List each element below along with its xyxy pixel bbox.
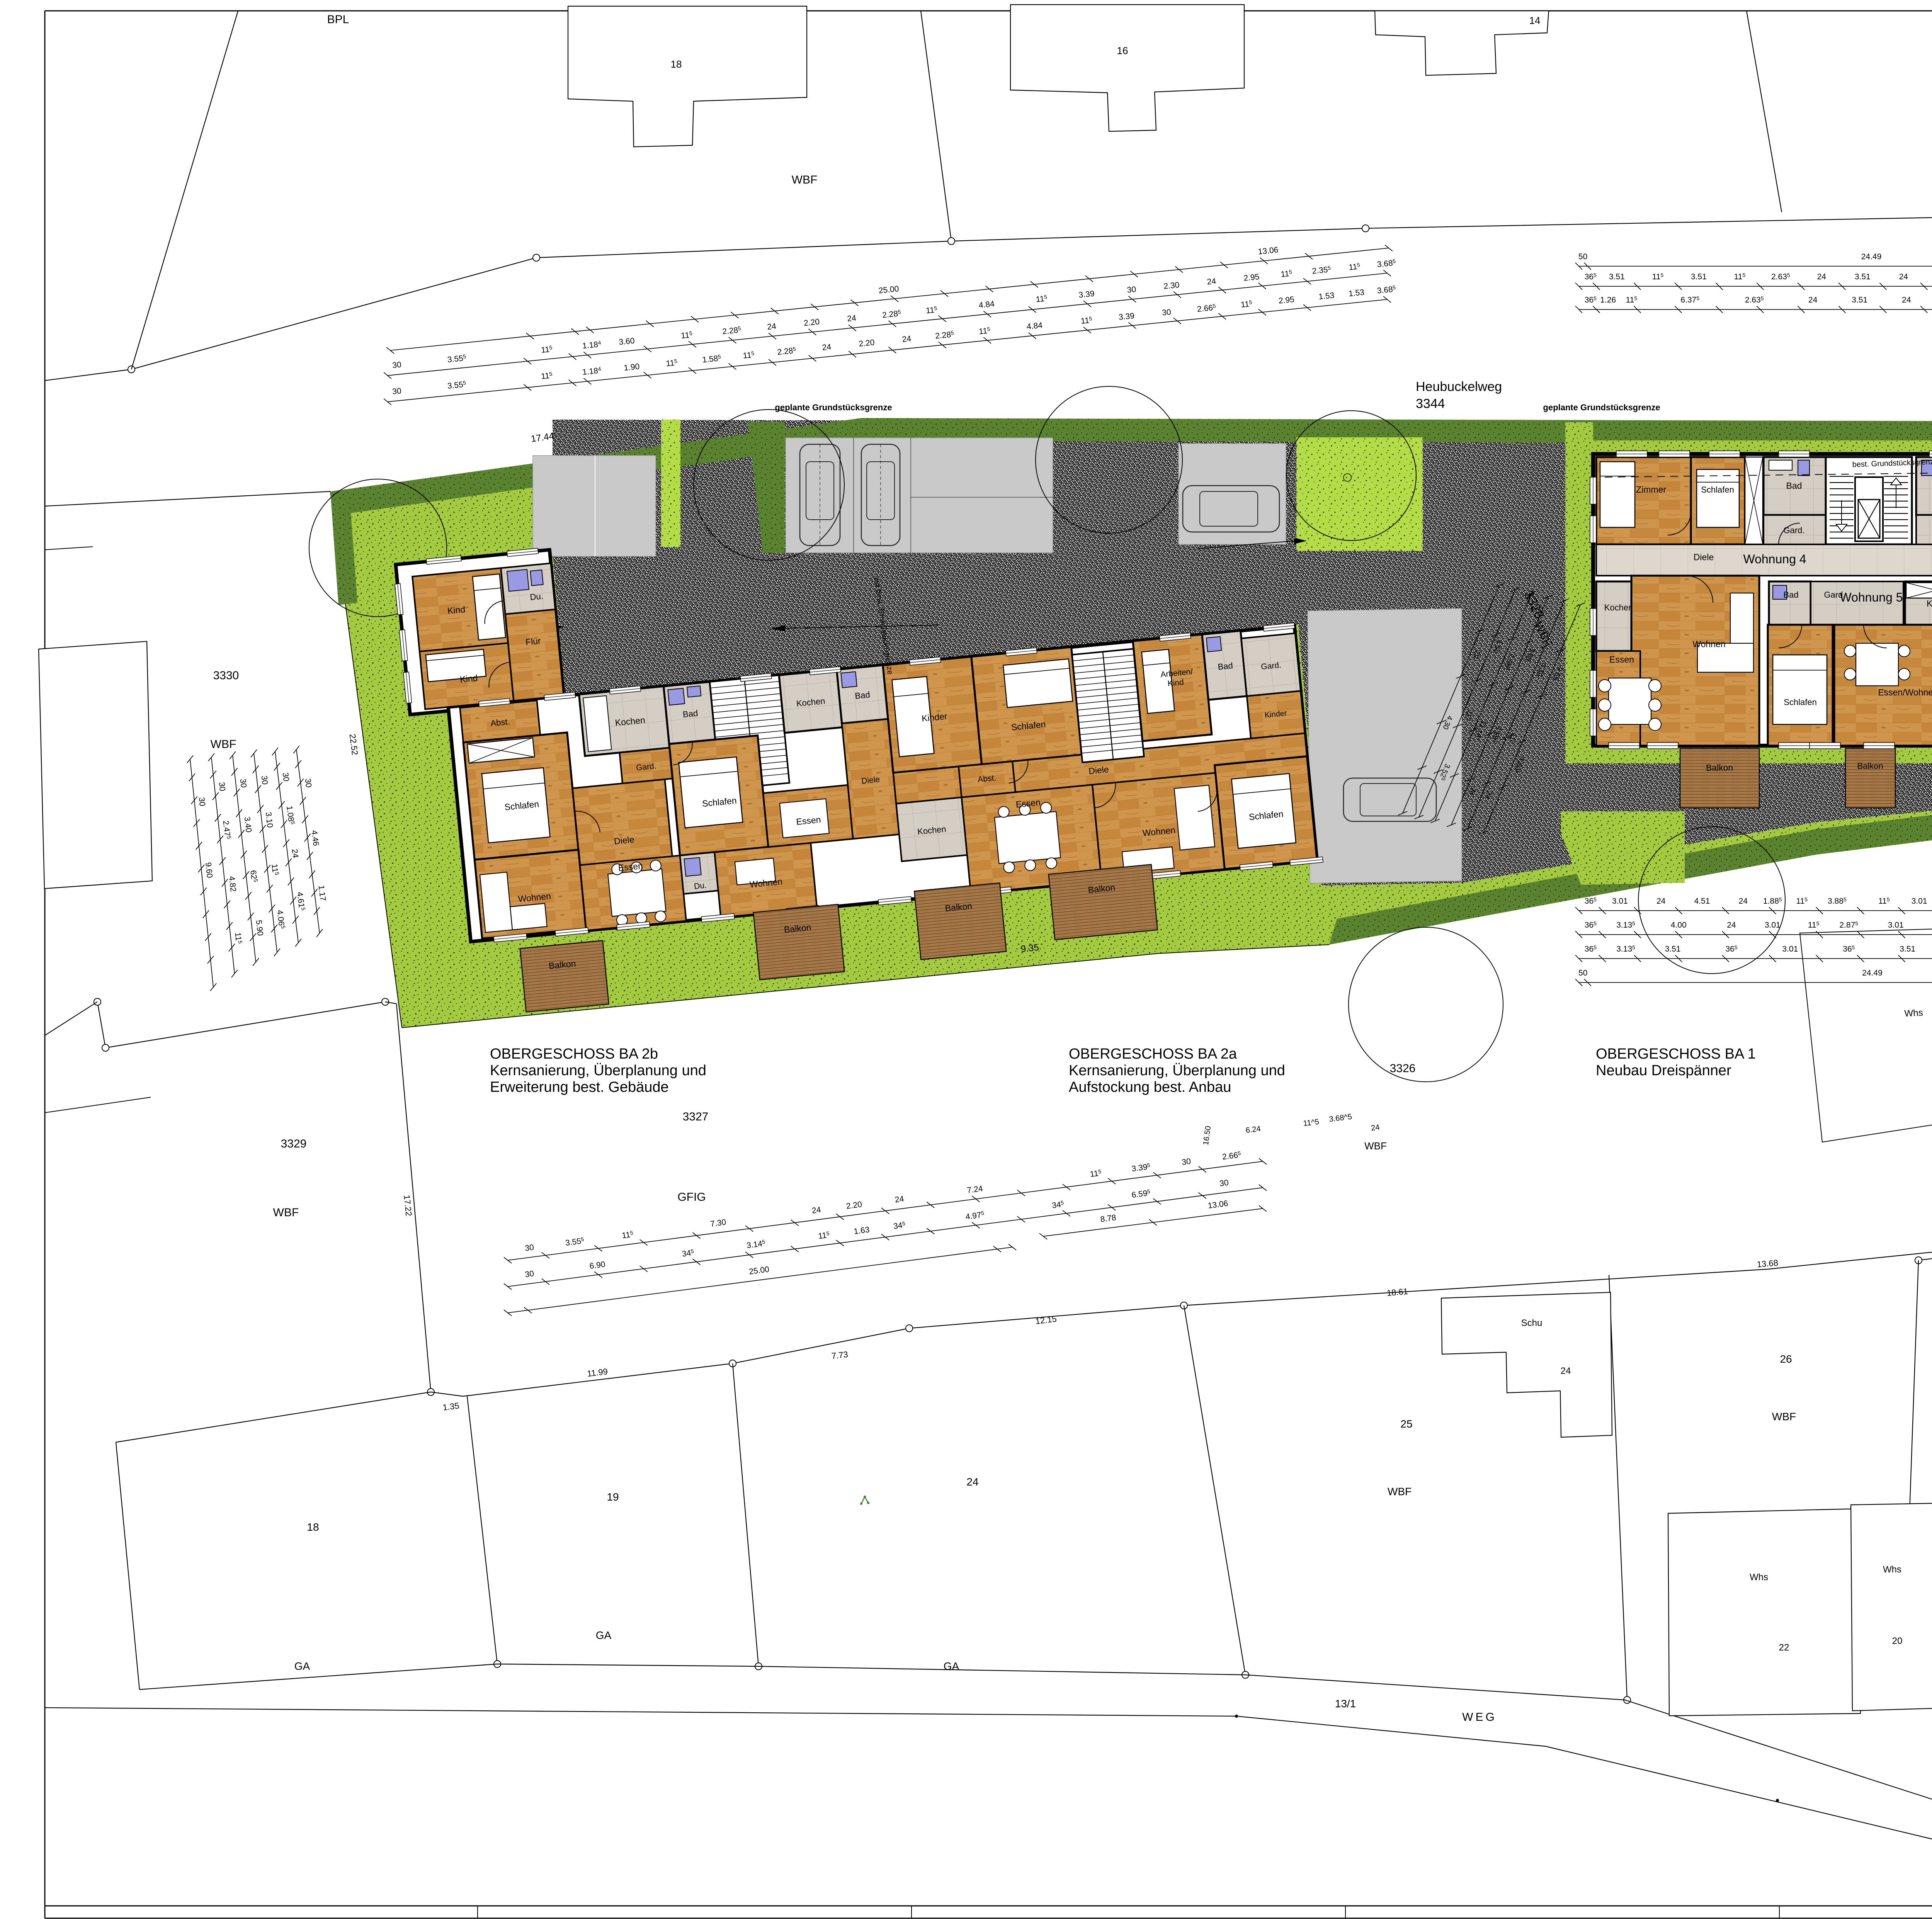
svg-text:24: 24 xyxy=(1656,897,1666,906)
svg-text:24: 24 xyxy=(1207,277,1217,286)
svg-text:4.51: 4.51 xyxy=(1694,897,1710,906)
svg-text:geplante Grundstücksgrenze: geplante Grundstücksgrenze xyxy=(775,403,892,412)
svg-text:25: 25 xyxy=(1400,1418,1412,1430)
svg-text:Wohnung 4: Wohnung 4 xyxy=(1743,552,1806,566)
svg-text:24: 24 xyxy=(1902,296,1911,304)
svg-text:Bad: Bad xyxy=(1786,481,1802,491)
svg-text:18: 18 xyxy=(307,1521,319,1533)
svg-text:24: 24 xyxy=(1561,1366,1571,1376)
svg-text:Wohnen: Wohnen xyxy=(1692,639,1725,649)
svg-text:OBERGESCHOSS BA 2b: OBERGESCHOSS BA 2b xyxy=(490,1046,658,1062)
svg-text:18: 18 xyxy=(671,58,682,70)
svg-text:3326: 3326 xyxy=(1390,1062,1416,1075)
svg-text:24: 24 xyxy=(822,342,832,352)
svg-text:Bad: Bad xyxy=(1217,661,1233,672)
svg-text:Diele: Diele xyxy=(861,775,880,785)
svg-text:3327: 3327 xyxy=(683,1110,709,1123)
svg-text:Du.: Du. xyxy=(694,881,707,891)
svg-text:13.68: 13.68 xyxy=(1757,1258,1779,1270)
svg-text:16: 16 xyxy=(1117,45,1128,56)
svg-text:1.35: 1.35 xyxy=(442,1401,460,1412)
svg-text:3.01: 3.01 xyxy=(1782,945,1798,954)
svg-text:2.30: 2.30 xyxy=(1163,280,1180,291)
svg-text:2.95: 2.95 xyxy=(1278,295,1295,306)
svg-text:Abst.: Abst. xyxy=(977,773,997,784)
svg-text:24.49: 24.49 xyxy=(1862,969,1883,977)
svg-text:3.01: 3.01 xyxy=(1888,921,1904,930)
svg-text:3329: 3329 xyxy=(281,1137,307,1150)
svg-text:1.26: 1.26 xyxy=(1600,296,1616,304)
svg-text:Kochen: Kochen xyxy=(1604,603,1633,612)
svg-text:Essen/Wohnen: Essen/Wohnen xyxy=(1878,687,1932,697)
svg-text:30: 30 xyxy=(197,797,207,807)
svg-text:24.49: 24.49 xyxy=(1861,252,1882,261)
svg-text:22: 22 xyxy=(1779,1642,1789,1653)
svg-text:30: 30 xyxy=(392,386,402,396)
svg-text:30: 30 xyxy=(281,772,291,782)
svg-text:Schlafen: Schlafen xyxy=(1701,485,1734,495)
svg-text:WBF: WBF xyxy=(1772,1411,1796,1423)
svg-text:1.53: 1.53 xyxy=(1348,288,1365,298)
svg-text:Kochen: Kochen xyxy=(1927,598,1932,609)
svg-text:9.35: 9.35 xyxy=(1020,942,1039,955)
svg-text:GFIG: GFIG xyxy=(677,1191,706,1203)
svg-text:Schlafen: Schlafen xyxy=(1784,697,1817,707)
svg-text:GA: GA xyxy=(596,1629,612,1641)
svg-text:Neubau Dreispänner: Neubau Dreispänner xyxy=(1596,1062,1731,1079)
svg-text:Flur: Flur xyxy=(525,636,541,647)
svg-text:3.51: 3.51 xyxy=(1855,272,1871,281)
svg-text:Diele: Diele xyxy=(1088,764,1109,776)
svg-text:30: 30 xyxy=(217,782,227,792)
svg-text:2.95: 2.95 xyxy=(1243,272,1260,283)
svg-text:Essen: Essen xyxy=(1609,654,1634,665)
svg-text:1.53: 1.53 xyxy=(1318,291,1335,301)
svg-text:WBF: WBF xyxy=(211,738,236,751)
svg-text:Heubuckelweg: Heubuckelweg xyxy=(1416,379,1502,394)
svg-text:3344: 3344 xyxy=(1416,396,1445,411)
svg-text:WBF: WBF xyxy=(1364,1140,1387,1152)
svg-text:50: 50 xyxy=(1578,252,1587,261)
svg-text:24: 24 xyxy=(902,334,912,344)
svg-text:30: 30 xyxy=(1219,1178,1229,1188)
svg-text:30: 30 xyxy=(260,775,270,785)
svg-text:2.20: 2.20 xyxy=(803,317,820,328)
svg-text:30: 30 xyxy=(1162,308,1172,317)
svg-text:geplante Grundstücksgrenze: geplante Grundstücksgrenze xyxy=(1543,403,1660,412)
svg-text:OBERGESCHOSS BA 1: OBERGESCHOSS BA 1 xyxy=(1596,1046,1756,1062)
svg-text:6.24: 6.24 xyxy=(1245,1125,1261,1135)
svg-text:24: 24 xyxy=(1817,272,1827,281)
svg-text:WEG: WEG xyxy=(1462,1711,1497,1724)
svg-text:1.90: 1.90 xyxy=(623,362,640,372)
svg-text:26: 26 xyxy=(1780,1353,1792,1365)
svg-text:WBF: WBF xyxy=(273,1206,299,1219)
svg-text:3.51: 3.51 xyxy=(1665,945,1681,954)
svg-text:3.40: 3.40 xyxy=(243,816,253,833)
svg-text:3.01: 3.01 xyxy=(1912,897,1927,906)
svg-text:2.20: 2.20 xyxy=(858,338,875,348)
svg-text:30: 30 xyxy=(303,778,313,788)
svg-text:Bad: Bad xyxy=(854,690,870,701)
svg-text:3.51: 3.51 xyxy=(1609,272,1625,281)
svg-text:Diele: Diele xyxy=(1694,552,1714,562)
svg-text:3.01: 3.01 xyxy=(1612,897,1628,906)
svg-text:Zimmer: Zimmer xyxy=(1636,484,1666,495)
svg-text:24: 24 xyxy=(895,1195,905,1205)
svg-text:Whs: Whs xyxy=(1883,1564,1901,1575)
svg-text:OBERGESCHOSS BA 2a: OBERGESCHOSS BA 2a xyxy=(1069,1046,1237,1062)
svg-text:Kind: Kind xyxy=(1167,678,1184,688)
svg-text:30: 30 xyxy=(392,360,402,370)
svg-text:14: 14 xyxy=(1529,15,1541,26)
svg-text:24: 24 xyxy=(1899,272,1908,281)
svg-text:3.51: 3.51 xyxy=(1691,272,1707,281)
svg-text:4.84: 4.84 xyxy=(1026,321,1043,331)
svg-text:19: 19 xyxy=(607,1491,619,1503)
svg-text:7.73: 7.73 xyxy=(831,1350,849,1361)
svg-text:30: 30 xyxy=(1181,1157,1191,1167)
svg-text:Whs: Whs xyxy=(1904,1008,1923,1019)
svg-text:Diele: Diele xyxy=(614,835,635,846)
svg-text:30: 30 xyxy=(524,1243,534,1253)
svg-text:24: 24 xyxy=(1727,921,1736,930)
svg-text:3.39: 3.39 xyxy=(1078,289,1095,300)
svg-text:30: 30 xyxy=(524,1269,534,1279)
svg-text:3.51: 3.51 xyxy=(1900,945,1915,954)
svg-text:24: 24 xyxy=(966,1476,978,1488)
svg-text:24: 24 xyxy=(1739,897,1748,906)
svg-text:24: 24 xyxy=(811,1205,821,1215)
svg-text:WBF: WBF xyxy=(1388,1486,1412,1497)
svg-text:3.60: 3.60 xyxy=(619,336,635,347)
svg-text:Balkon: Balkon xyxy=(1706,763,1733,773)
svg-text:GA: GA xyxy=(944,1660,959,1672)
svg-text:Aufstockung best. Anbau: Aufstockung best. Anbau xyxy=(1069,1079,1231,1095)
svg-text:24: 24 xyxy=(290,848,300,858)
svg-text:Kernsanierung, Überplanung und: Kernsanierung, Überplanung und xyxy=(1069,1062,1285,1079)
svg-text:4.84: 4.84 xyxy=(978,299,995,310)
svg-text:BPL: BPL xyxy=(327,13,349,26)
svg-text:24: 24 xyxy=(1371,1123,1380,1133)
svg-text:GA: GA xyxy=(294,1660,310,1672)
svg-text:18.61: 18.61 xyxy=(1386,1287,1408,1298)
svg-text:3.39: 3.39 xyxy=(1118,311,1135,322)
svg-text:Abst.: Abst. xyxy=(490,717,510,728)
svg-text:Du.: Du. xyxy=(529,591,543,602)
svg-text:4.00: 4.00 xyxy=(1671,921,1687,930)
svg-text:24: 24 xyxy=(767,322,777,331)
svg-text:Whs: Whs xyxy=(1750,1572,1768,1582)
svg-text:Kind: Kind xyxy=(447,604,466,616)
svg-text:3330: 3330 xyxy=(213,669,239,682)
svg-text:Kernsanierung, Überplanung und: Kernsanierung, Überplanung und xyxy=(490,1062,706,1079)
svg-text:Gard.: Gard. xyxy=(1783,525,1804,535)
svg-text:3.01: 3.01 xyxy=(1765,921,1781,930)
svg-text:9.60: 9.60 xyxy=(204,862,214,879)
svg-text:Wohnung 5: Wohnung 5 xyxy=(1840,590,1903,604)
svg-text:3.10: 3.10 xyxy=(264,811,275,828)
svg-text:Erweiterung best. Gebäude: Erweiterung best. Gebäude xyxy=(490,1079,669,1095)
svg-text:Kind: Kind xyxy=(459,673,478,684)
svg-text:50: 50 xyxy=(1578,969,1587,977)
svg-text:Balkon: Balkon xyxy=(1857,761,1883,771)
svg-text:24: 24 xyxy=(1808,296,1818,304)
svg-text:30: 30 xyxy=(1127,285,1137,295)
svg-text:13/1: 13/1 xyxy=(1335,1698,1356,1710)
svg-text:3.51: 3.51 xyxy=(1852,296,1867,304)
svg-text:4.82: 4.82 xyxy=(227,875,238,892)
svg-text:24: 24 xyxy=(847,314,857,323)
svg-text:Bad: Bad xyxy=(1783,590,1798,600)
svg-text:20: 20 xyxy=(1892,1636,1903,1646)
svg-text:5.90: 5.90 xyxy=(254,920,265,936)
svg-text:Schu: Schu xyxy=(1521,1318,1543,1328)
svg-text:30: 30 xyxy=(238,778,248,788)
svg-text:WBF: WBF xyxy=(792,173,818,186)
svg-text:Bad: Bad xyxy=(682,708,698,719)
